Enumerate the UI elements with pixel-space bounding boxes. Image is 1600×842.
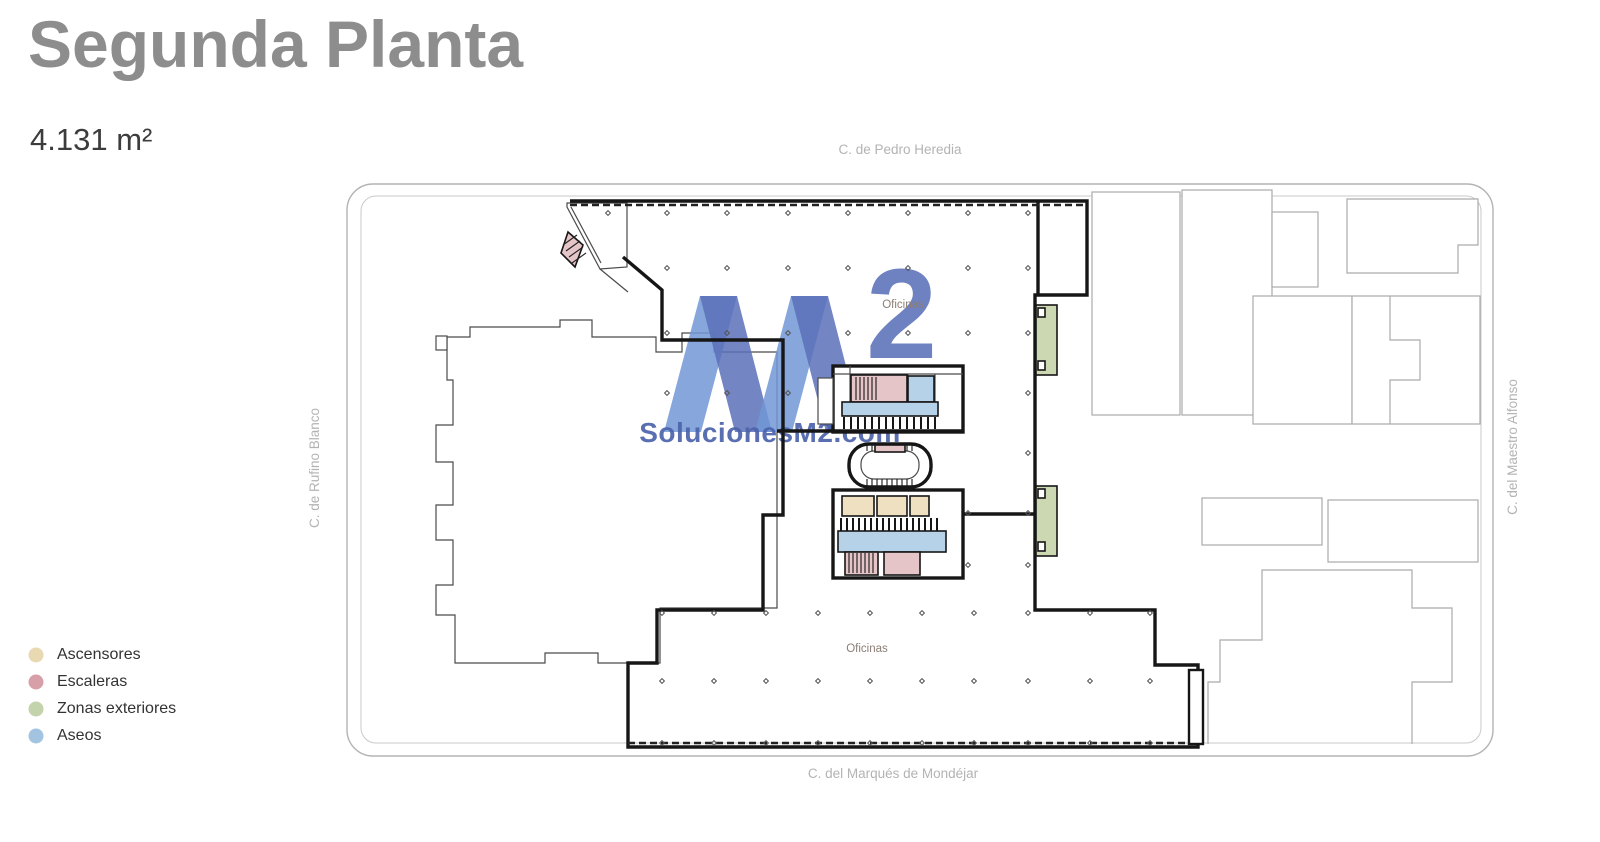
floorplan-page: Segunda Planta 4.131 m² Ascensores Escal… — [0, 0, 1600, 842]
oval-stair — [849, 444, 931, 487]
stair-oval-landing — [875, 445, 905, 452]
exterior-zones — [1036, 305, 1057, 556]
street-label-north: C. de Pedro Heredia — [838, 142, 962, 157]
elevator-cell-3 — [910, 496, 929, 516]
street-label-west: C. de Rufino Blanco — [307, 408, 322, 528]
aseos-band-lower — [838, 531, 946, 552]
stair-room-upper — [851, 375, 907, 402]
core-lower-block — [833, 490, 1035, 578]
floor-plan: 2 SolucionesM2.com — [0, 0, 1600, 842]
aseos-band-upper — [842, 402, 938, 416]
stair-annex-topleft — [561, 203, 628, 292]
street-label-south: C. del Marqués de Mondéjar — [808, 766, 979, 781]
elevator-cell-1 — [842, 496, 874, 516]
aseos-room-upper-small — [908, 376, 934, 402]
stair-room-lower-2 — [884, 552, 920, 575]
elevator-cell-2 — [877, 496, 907, 516]
neighbor-buildings — [1092, 190, 1480, 744]
oficinas-label-bottom: Oficinas — [846, 643, 888, 655]
street-label-east: C. del Maestro Alfonso — [1505, 379, 1520, 515]
oficinas-label-top: Oficinas — [882, 299, 924, 311]
